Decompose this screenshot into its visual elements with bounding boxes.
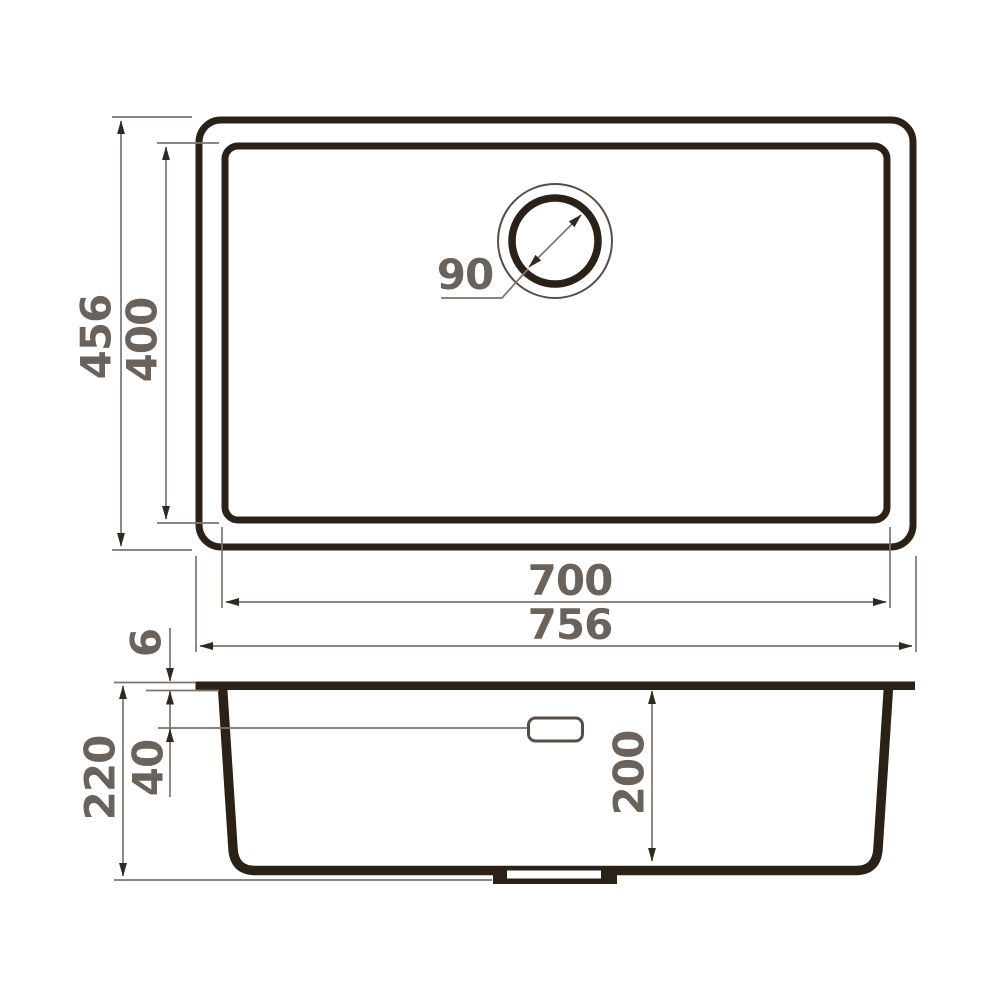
dim-label-overall-length: 756 (528, 600, 613, 649)
drain-diameter-arrow (529, 215, 581, 267)
dim-label-total-height: 220 (76, 736, 125, 821)
drawing-canvas: 90 456 400 700 756 (0, 0, 1000, 1000)
side-view: 220 6 40 200 (76, 628, 916, 884)
overflow-opening (529, 718, 583, 741)
top-view-bowl-edge (225, 146, 887, 520)
side-view-bowl-profile (223, 687, 889, 871)
dim-label-bowl-width: 400 (118, 298, 167, 383)
top-view: 90 456 400 700 756 (72, 117, 917, 652)
side-view-rim (196, 682, 916, 691)
dim-label-overflow-offset: 40 (124, 740, 173, 796)
drain-fitting-slot (507, 871, 601, 879)
dim-label-rim-thickness: 6 (122, 629, 171, 657)
sink-technical-drawing: 90 456 400 700 756 (0, 0, 1000, 1000)
dim-label-drain-diameter: 90 (437, 250, 493, 299)
dim-label-bowl-length: 700 (528, 556, 613, 605)
dim-label-bowl-depth: 200 (605, 731, 654, 816)
dim-label-overall-width: 456 (72, 295, 121, 380)
